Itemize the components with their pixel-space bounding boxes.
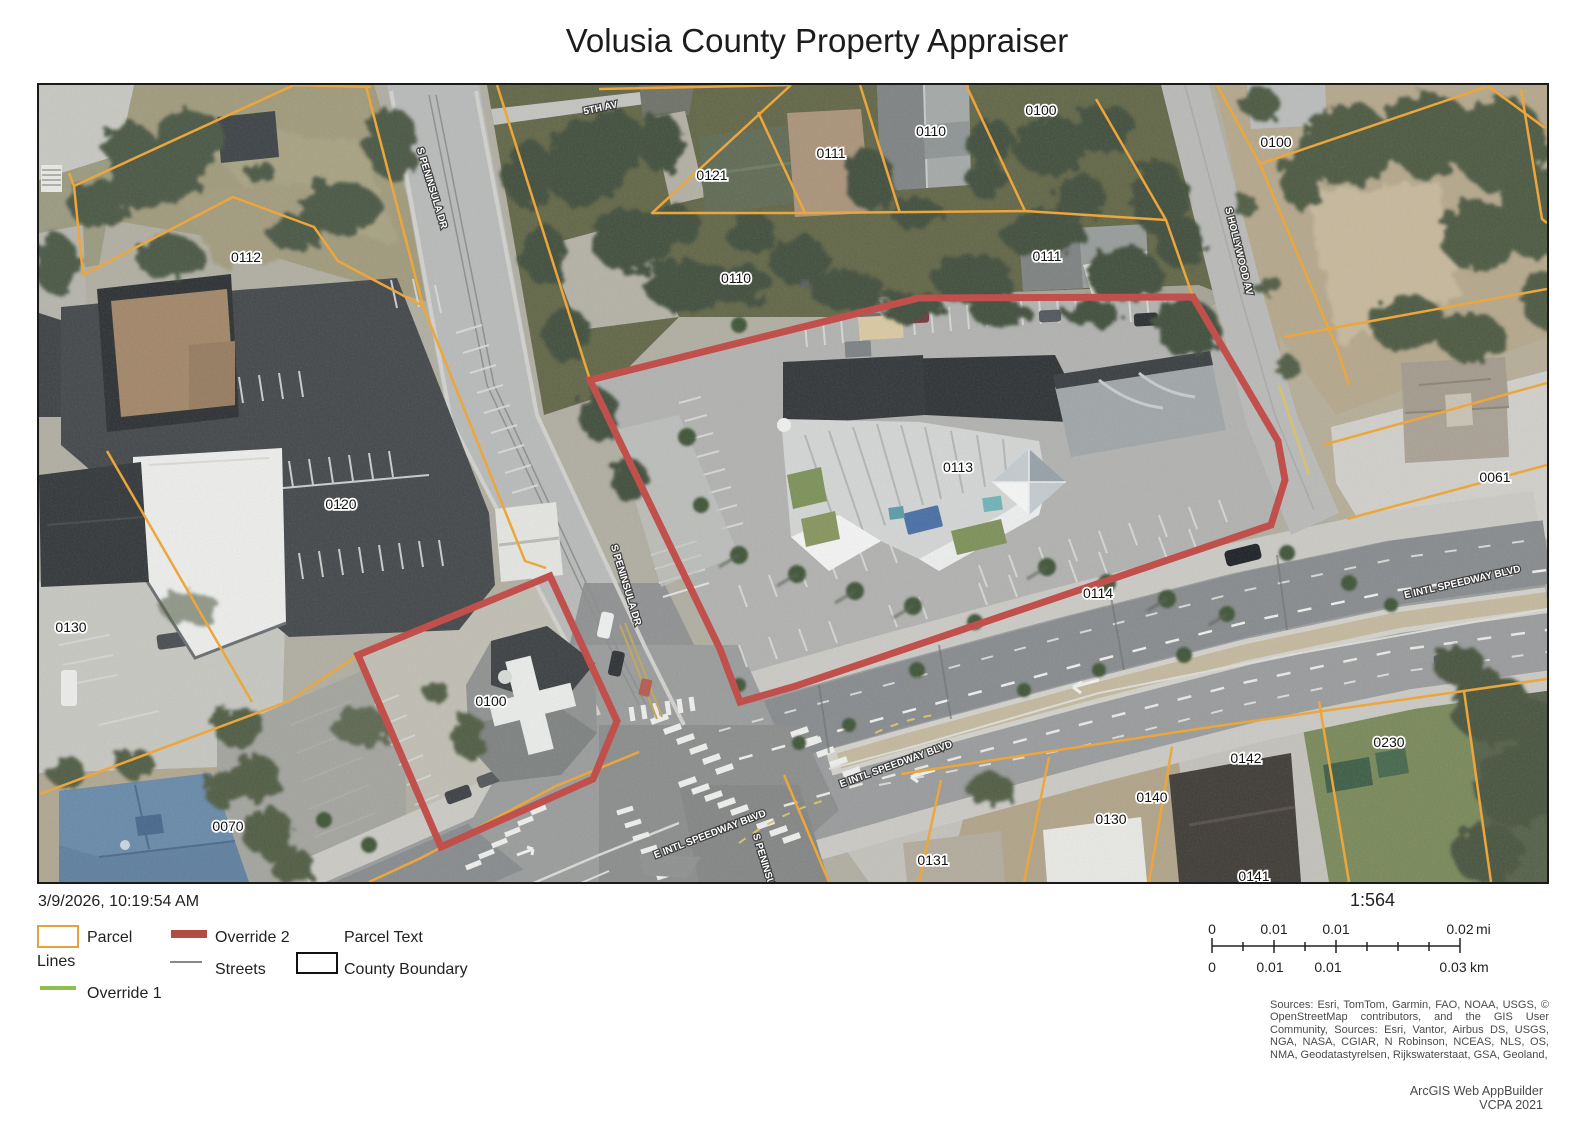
svg-text:0100: 0100 [1025, 102, 1056, 118]
svg-text:0113: 0113 [943, 459, 973, 475]
svg-text:0120: 0120 [325, 496, 356, 512]
svg-text:0140: 0140 [1136, 789, 1167, 805]
svg-text:0100: 0100 [1260, 134, 1291, 150]
svg-text:0.01: 0.01 [1260, 921, 1287, 937]
svg-text:0114: 0114 [1083, 585, 1113, 601]
svg-text:0.01: 0.01 [1322, 921, 1349, 937]
svg-text:0111: 0111 [816, 145, 845, 161]
svg-text:0141: 0141 [1238, 868, 1269, 882]
svg-text:0.01: 0.01 [1314, 959, 1341, 975]
svg-text:0110: 0110 [721, 270, 751, 286]
svg-text:0142: 0142 [1230, 750, 1261, 766]
svg-text:0121: 0121 [696, 167, 727, 183]
svg-text:0111: 0111 [1032, 248, 1061, 264]
svg-text:0130: 0130 [55, 619, 86, 635]
svg-text:0112: 0112 [231, 249, 261, 265]
svg-text:0.02: 0.02 [1446, 921, 1473, 937]
svg-text:0110: 0110 [916, 123, 946, 139]
svg-text:0061: 0061 [1479, 469, 1510, 485]
svg-text:0100: 0100 [475, 693, 506, 709]
svg-text:0070: 0070 [212, 818, 243, 834]
svg-text:0130: 0130 [1095, 811, 1126, 827]
svg-text:0.03: 0.03 [1439, 959, 1466, 975]
svg-text:0131: 0131 [917, 852, 948, 868]
svg-text:mi: mi [1476, 921, 1490, 937]
svg-text:0: 0 [1208, 959, 1216, 975]
svg-text:km: km [1470, 959, 1489, 975]
svg-text:0: 0 [1208, 921, 1216, 937]
svg-text:0.01: 0.01 [1256, 959, 1283, 975]
svg-text:0230: 0230 [1373, 734, 1404, 750]
